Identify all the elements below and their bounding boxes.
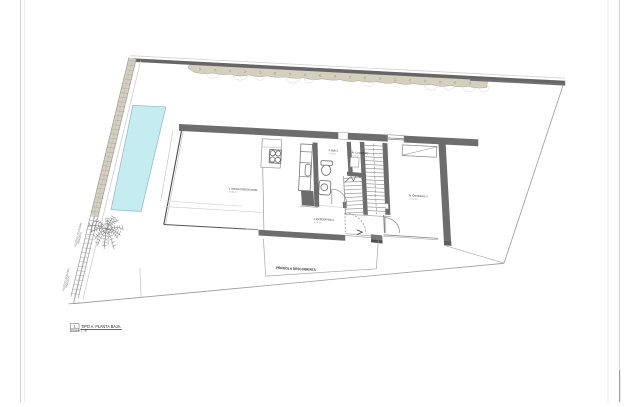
svg-text:ESCALA: ESCALA — [71, 329, 80, 332]
svg-text:49.09 m²: 49.09 m² — [229, 191, 237, 194]
svg-text:1: 1 — [74, 325, 76, 329]
svg-text:1 : 50: 1 : 50 — [81, 330, 88, 333]
svg-text:4.29 m²: 4.29 m² — [329, 152, 337, 155]
svg-text:8.75 m²: 8.75 m² — [314, 221, 322, 224]
svg-text:3.05 m²: 3.05 m² — [352, 155, 360, 158]
svg-text:TIPO A. PLANTA BAJA.: TIPO A. PLANTA BAJA. — [81, 324, 121, 329]
svg-text:11.42 m²: 11.42 m² — [409, 198, 417, 201]
